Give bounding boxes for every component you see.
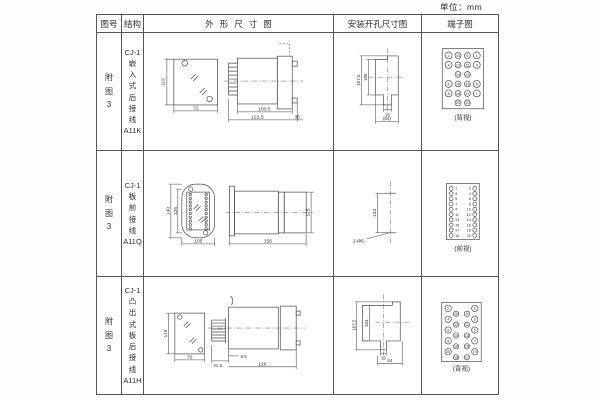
terminal-number: 6 bbox=[447, 328, 449, 332]
terminal-circle bbox=[189, 193, 191, 195]
terminal-number: 8 bbox=[448, 90, 451, 95]
terminal-number: 2 bbox=[469, 186, 471, 190]
terminal-number: 15 bbox=[455, 223, 459, 227]
terminal-number: 18 bbox=[467, 228, 471, 232]
terminal-number: 4 bbox=[447, 318, 449, 322]
dim-front-width: 72 bbox=[193, 105, 199, 111]
terminal-number: 13 bbox=[465, 334, 469, 338]
terminal-circle bbox=[189, 212, 191, 214]
terminal-number: 20 bbox=[446, 350, 450, 354]
outline-cell-2: 140 125 105 115 156 bbox=[144, 151, 334, 277]
structure-cell-2: CJ-1 板 前 接 线 A11Q bbox=[122, 151, 144, 277]
terminal-diagram-a11k: (背视) 2109141211314136161558181772019 bbox=[422, 33, 498, 151]
structure-3: CJ-1 凸 出 式 板 后 接 线 A11H bbox=[123, 285, 141, 386]
terminal-number: 5 bbox=[455, 197, 457, 201]
terminal-circle bbox=[473, 233, 477, 237]
terminal-number: 14 bbox=[454, 334, 458, 338]
structure-cell-3: CJ-1 凸 出 式 板 后 接 线 A11H bbox=[122, 277, 144, 394]
dim-mount-height-inner: 104 bbox=[364, 319, 369, 327]
spec-table: 图号 结构 外形尺寸图 安装开孔尺寸图 端子图 附 图 3 CJ-1 嵌 入 式… bbox=[96, 14, 499, 395]
terminal-diagram-a11q: (前视) 1234567891011121314151617181920 bbox=[422, 151, 498, 277]
dim-front-height-outer: 140 bbox=[165, 206, 171, 215]
terminal-number: 10 bbox=[467, 207, 471, 211]
unit-label: 单位：mm bbox=[440, 1, 482, 13]
header-fig-no: 图号 bbox=[97, 15, 122, 33]
terminal-circle bbox=[189, 208, 191, 210]
terminal-circle bbox=[205, 212, 207, 214]
terminal-number: 19 bbox=[473, 350, 477, 354]
terminal-cell-1: (背视) 2109141211314136161558181772019 bbox=[422, 33, 498, 151]
terminal-circle bbox=[449, 186, 453, 190]
terminal-number: 2 bbox=[448, 52, 450, 57]
dim-side-height: 115 bbox=[306, 208, 312, 216]
mounting-cell-1: 107.5 105 16 (64) bbox=[334, 33, 422, 151]
terminal-cell-3: (背视) 2104126148162018193115137151917 bbox=[422, 277, 498, 394]
dim-front-height: 115 bbox=[160, 77, 166, 85]
terminal-number: 1 bbox=[455, 186, 457, 190]
outline-drawing-a11q: 140 125 105 115 156 bbox=[144, 151, 333, 277]
terminal-number: 8 bbox=[447, 339, 449, 343]
dim-mount-height-outer: 107.5 bbox=[356, 74, 361, 86]
terminal-circle bbox=[189, 216, 191, 218]
terminal-circle bbox=[473, 186, 477, 190]
terminal-circle bbox=[205, 219, 207, 221]
outline-drawing-a11h: 115 72 31.5 9.5 126 bbox=[144, 277, 333, 394]
terminal-circle bbox=[189, 219, 191, 221]
terminal-circle bbox=[473, 202, 477, 206]
dim-mount-height-inner: 105 bbox=[363, 72, 368, 80]
terminal-number: 8 bbox=[469, 202, 471, 206]
dim-front-width: 72 bbox=[187, 354, 193, 360]
fig-no-2: 附 图 3 bbox=[105, 193, 113, 234]
terminal-circle bbox=[449, 212, 453, 216]
terminal-circle bbox=[205, 204, 207, 206]
terminal-number: 16 bbox=[454, 345, 458, 349]
terminal-number: 19 bbox=[465, 100, 469, 105]
terminal-circle bbox=[473, 191, 477, 195]
terminal-number: 20 bbox=[467, 233, 471, 237]
outline-drawing-a11k: 115 72 100.5 122.5 35 bbox=[144, 33, 333, 151]
terminal-number: 13 bbox=[455, 218, 459, 222]
terminal-circle bbox=[205, 223, 207, 225]
terminal-circle bbox=[449, 202, 453, 206]
terminal-number: 5 bbox=[474, 328, 476, 332]
terminal-circle bbox=[449, 217, 453, 221]
dim-fin-depth: 31.5 bbox=[213, 363, 222, 368]
terminal-number: 6 bbox=[448, 81, 451, 86]
dim-mount-height-outer: 107.5 bbox=[351, 319, 356, 331]
terminal-number: 2 bbox=[447, 307, 449, 311]
terminal-number: 1 bbox=[476, 52, 478, 57]
fig-no-3: 附 图 3 bbox=[105, 315, 113, 356]
terminal-circle bbox=[473, 207, 477, 211]
terminal-number: 9 bbox=[466, 312, 468, 316]
terminal-cell-2: (前视) 1234567891011121314151617181920 bbox=[422, 151, 498, 277]
terminal-number: 3 bbox=[455, 191, 457, 195]
structure-cell-1: CJ-1 嵌 入 式 后 接 线 A11K bbox=[122, 33, 144, 151]
terminal-circle bbox=[189, 223, 191, 225]
outline-cell-3: 115 72 31.5 9.5 126 bbox=[144, 277, 334, 394]
header-outline: 外形尺寸图 bbox=[144, 15, 334, 33]
terminal-number: 11 bbox=[455, 212, 459, 216]
dim-flange-depth: 35 bbox=[294, 114, 300, 120]
terminal-circle bbox=[449, 207, 453, 211]
structure-2: CJ-1 板 前 接 线 A11Q bbox=[123, 180, 142, 248]
outline-cell-1: 115 72 100.5 122.5 35 bbox=[144, 33, 334, 151]
terminal-view-label-3: (背视) bbox=[453, 364, 470, 373]
terminal-number: 9 bbox=[455, 207, 457, 211]
terminal-view-label-1: (背视) bbox=[454, 112, 471, 121]
dim-opening-width: (64) bbox=[383, 116, 391, 121]
terminal-circle bbox=[473, 212, 477, 216]
terminal-number: 14 bbox=[467, 218, 471, 222]
header-terminal: 端子图 bbox=[422, 15, 498, 33]
terminal-circle bbox=[473, 196, 477, 200]
dim-depth-total: 122.5 bbox=[251, 114, 264, 120]
dim-offset: 9.5 bbox=[240, 354, 247, 359]
fig-no-cell-1: 附 图 3 bbox=[97, 33, 122, 151]
terminal-number: 12 bbox=[454, 323, 458, 327]
mounting-cell-2: 133 2-Φ5 bbox=[334, 151, 422, 277]
terminal-circle bbox=[205, 208, 207, 210]
terminal-number: 6 bbox=[469, 197, 471, 201]
terminal-circle bbox=[449, 233, 453, 237]
mounting-cell-3: 107.5 104 16 64 bbox=[334, 277, 422, 394]
terminal-number: 3 bbox=[474, 318, 476, 322]
mounting-drawing-a11q: 133 2-Φ5 bbox=[334, 151, 421, 277]
terminal-circle bbox=[473, 222, 477, 226]
header-mounting: 安装开孔尺寸图 bbox=[334, 15, 422, 33]
dim-front-width: 105 bbox=[194, 238, 203, 244]
terminal-number: 18 bbox=[454, 356, 458, 360]
terminal-number: 11 bbox=[465, 62, 469, 67]
terminal-number: 12 bbox=[467, 212, 471, 216]
terminal-circle bbox=[473, 217, 477, 221]
terminal-number: 7 bbox=[476, 90, 478, 95]
terminal-circle bbox=[189, 227, 191, 229]
dim-front-height: 115 bbox=[163, 329, 169, 337]
dim-depth-total: 156 bbox=[264, 238, 273, 244]
terminal-circle bbox=[205, 197, 207, 199]
terminal-number: 17 bbox=[465, 90, 469, 95]
terminal-number: 4 bbox=[469, 191, 471, 195]
header-structure: 结构 bbox=[122, 15, 144, 33]
dim-front-height-inner: 125 bbox=[173, 206, 179, 215]
terminal-number: 7 bbox=[474, 339, 476, 343]
terminal-number: 16 bbox=[467, 223, 471, 227]
terminal-number: 10 bbox=[454, 312, 458, 316]
terminal-number: 15 bbox=[465, 345, 469, 349]
terminal-number: 4 bbox=[448, 62, 451, 67]
terminal-circle bbox=[189, 200, 191, 202]
dim-opening-width: 64 bbox=[387, 358, 392, 363]
mounting-drawing-a11h: 107.5 104 16 64 bbox=[334, 277, 421, 394]
mounting-drawing-a11k: 107.5 105 16 (64) bbox=[334, 33, 421, 151]
terminal-circle bbox=[449, 191, 453, 195]
dim-depth-body: 100.5 bbox=[258, 106, 271, 112]
terminal-circle bbox=[189, 204, 191, 206]
dim-notch-width: 16 bbox=[381, 356, 386, 361]
fig-no-1: 附 图 3 bbox=[105, 71, 113, 112]
terminal-number: 17 bbox=[455, 228, 459, 232]
fig-no-cell-2: 附 图 3 bbox=[97, 151, 122, 277]
terminal-circle bbox=[449, 196, 453, 200]
fig-no-cell-3: 附 图 3 bbox=[97, 277, 122, 394]
terminal-number: 3 bbox=[476, 62, 479, 67]
terminal-number: 17 bbox=[465, 356, 469, 360]
terminal-number: 12 bbox=[456, 62, 460, 67]
terminal-circle bbox=[449, 222, 453, 226]
structure-1: CJ-1 嵌 入 式 后 接 线 A11K bbox=[124, 47, 142, 137]
hole-spec-label: 2-Φ5 bbox=[353, 238, 364, 244]
dim-depth-total: 126 bbox=[258, 361, 267, 367]
terminal-number: 9 bbox=[466, 52, 468, 57]
terminal-number: 5 bbox=[476, 81, 479, 86]
terminal-circle bbox=[189, 197, 191, 199]
terminal-circle bbox=[205, 227, 207, 229]
terminal-number: 7 bbox=[455, 202, 457, 206]
terminal-circle bbox=[205, 200, 207, 202]
terminal-circle bbox=[205, 193, 207, 195]
terminal-diagram-a11h: (背视) 2104126148162018193115137151917 bbox=[422, 277, 498, 394]
terminal-number: 11 bbox=[465, 323, 469, 327]
dim-hole-distance: 133 bbox=[372, 208, 378, 216]
terminal-number: 19 bbox=[455, 233, 459, 237]
terminal-view-label-2: (前视) bbox=[454, 243, 471, 252]
terminal-number: 1 bbox=[474, 307, 476, 311]
terminal-circle bbox=[205, 216, 207, 218]
terminal-circle bbox=[449, 228, 453, 232]
terminal-circle bbox=[473, 228, 477, 232]
